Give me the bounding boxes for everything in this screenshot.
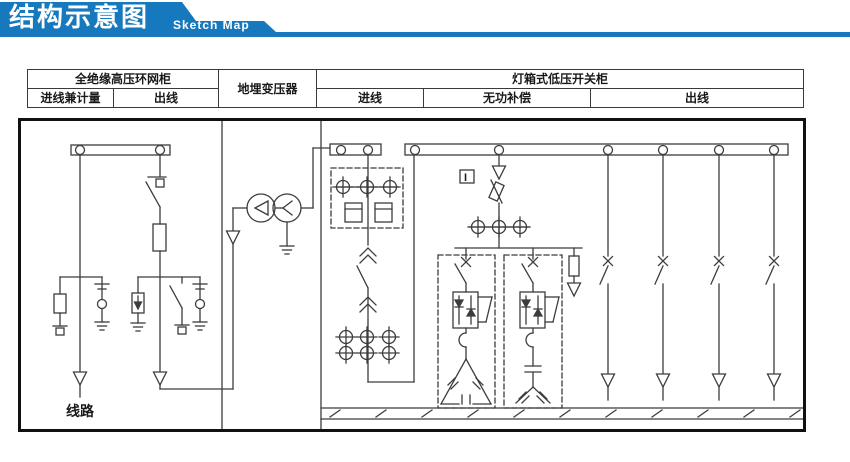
indicator-label: I xyxy=(464,172,467,184)
transformer-section xyxy=(227,148,331,389)
capacitor-bank-delta xyxy=(438,248,495,408)
incoming-breaker xyxy=(357,266,368,288)
outgoing-feeder-2 xyxy=(655,155,670,400)
energy-meter xyxy=(345,203,362,222)
discharge-arrester xyxy=(568,248,581,296)
energy-meter xyxy=(375,203,392,222)
sketch-map-page: 结构示意图 Sketch Map 全绝缘高压环网柜 地埋变压器 灯箱式低压开关柜… xyxy=(0,0,850,462)
outgoing-feeder-1 xyxy=(600,155,615,400)
thyristor-module xyxy=(520,292,545,328)
hv-outgoing-feeder xyxy=(131,155,233,389)
outgoing-feeder-4 xyxy=(766,155,781,400)
reactor xyxy=(459,333,466,347)
hv-ring-main-unit-section xyxy=(53,145,233,397)
load-break-switch xyxy=(146,182,160,207)
lv-outgoing-feeders xyxy=(600,155,781,400)
hv-incoming-feeder xyxy=(53,155,109,397)
earthing-switch xyxy=(170,286,182,308)
transformer-delta-winding xyxy=(247,194,275,222)
capacitor-bank-wye xyxy=(504,248,562,408)
hv-fuse xyxy=(153,224,166,251)
reactor xyxy=(526,333,533,347)
diagram-border xyxy=(20,120,805,431)
line-label: 线路 xyxy=(66,403,95,419)
lv-incoming-section xyxy=(330,144,414,382)
thyristor-module xyxy=(453,292,478,328)
outgoing-feeder-3 xyxy=(711,155,726,400)
ground-strip xyxy=(321,408,803,419)
single-line-diagram: 线路 I xyxy=(0,0,850,462)
lv-main-busbar xyxy=(405,144,788,155)
compensation-section xyxy=(438,155,582,408)
